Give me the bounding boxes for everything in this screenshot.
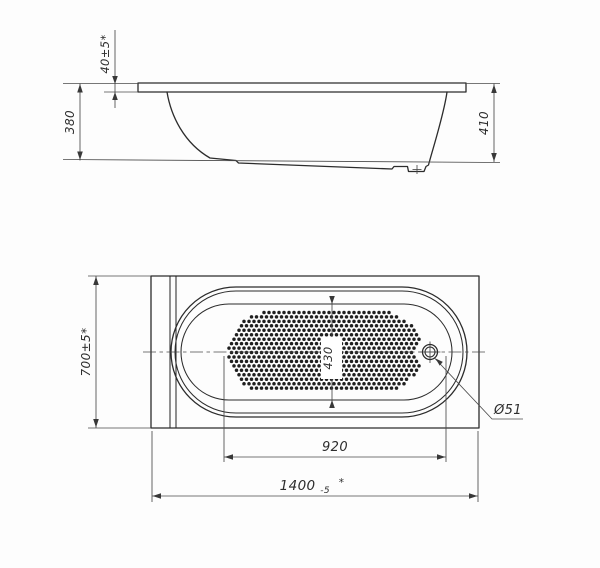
anti-slip-dot [297,364,301,368]
anti-slip-dot [362,346,366,350]
anti-slip-dot [300,360,304,364]
anti-slip-dot [355,315,359,319]
anti-slip-dot [307,337,311,341]
anti-slip-dot [250,342,254,346]
anti-slip-dot [382,373,386,377]
anti-slip-dot [295,315,299,319]
anti-slip-dot [252,320,256,324]
anti-slip-dot [372,337,376,341]
anti-slip-dot [320,333,324,337]
anti-slip-dot [287,320,291,324]
anti-slip-dot [265,315,269,319]
anti-slip-dot [412,346,416,350]
anti-slip-dot [252,382,256,386]
anti-slip-dot [352,329,356,333]
anti-slip-dot [340,333,344,337]
anti-slip-dot [317,373,321,377]
anti-slip-dot [407,373,411,377]
anti-slip-dot [342,320,346,324]
anti-slip-dot [290,324,294,328]
anti-slip-dot [370,342,374,346]
anti-slip-dot [270,377,274,381]
anti-slip-dot [270,333,274,337]
anti-slip-dot [237,337,241,341]
anti-slip-dot [255,369,259,373]
anti-slip-dot [312,337,316,341]
anti-slip-dot [385,333,389,337]
anti-slip-dot [380,324,384,328]
anti-slip-dot [390,351,394,355]
anti-slip-dot [265,342,269,346]
anti-slip-dot [237,329,241,333]
anti-slip-dot [292,382,296,386]
anti-slip-dot [280,386,284,390]
anti-slip-dot [297,337,301,341]
anti-slip-dot [255,315,259,319]
anti-slip-dot [400,324,404,328]
anti-slip-dot [305,360,309,364]
anti-slip-dot [350,386,354,390]
anti-slip-dot [350,342,354,346]
anti-slip-dot [380,386,384,390]
anti-slip-dot [375,333,379,337]
anti-slip-dot [345,351,349,355]
anti-slip-dot [345,360,349,364]
anti-slip-dot [380,360,384,364]
side-view: 40±5* 380 410 [63,30,500,174]
anti-slip-dot [252,329,256,333]
anti-slip-dot [347,355,351,359]
anti-slip-dot [372,364,376,368]
anti-slip-dot [382,337,386,341]
anti-slip-dot [307,311,311,315]
anti-slip-dot [355,369,359,373]
anti-slip-dot [355,360,359,364]
anti-slip-dot [302,329,306,333]
anti-slip-dot [352,311,356,315]
anti-slip-dot [362,364,366,368]
anti-slip-dot [357,355,361,359]
anti-slip-dot [260,360,264,364]
anti-slip-dot [385,360,389,364]
anti-slip-dot [340,386,344,390]
anti-slip-dot [405,324,409,328]
anti-slip-dot [282,320,286,324]
anti-slip-dot [305,324,309,328]
anti-slip-dot [310,386,314,390]
anti-slip-dot [257,382,261,386]
anti-slip-dot [282,355,286,359]
anti-slip-dot [412,355,416,359]
anti-slip-dot [307,320,311,324]
anti-slip-dot [325,324,329,328]
top-view: 430 Ø51 700±5* [79,276,523,502]
anti-slip-dot [337,382,341,386]
anti-slip-dot [382,311,386,315]
anti-slip-dot [320,315,324,319]
anti-slip-dot [362,311,366,315]
anti-slip-dot [370,386,374,390]
anti-slip-dot [375,315,379,319]
anti-slip-dot [282,337,286,341]
anti-slip-dot [360,324,364,328]
anti-slip-dot [377,311,381,315]
anti-slip-dot [397,337,401,341]
anti-slip-dot [362,382,366,386]
anti-slip-dot [402,337,406,341]
anti-slip-dot [245,324,249,328]
anti-slip-dot [245,342,249,346]
anti-slip-dot [397,364,401,368]
anti-slip-dot [407,346,411,350]
anti-slip-dot [347,320,351,324]
anti-slip-dot [405,377,409,381]
anti-slip-dot [265,360,269,364]
anti-slip-dot [302,311,306,315]
anti-slip-dot [290,342,294,346]
anti-slip-dot [267,346,271,350]
anti-slip-dot [397,382,401,386]
anti-slip-dot [230,342,234,346]
anti-slip-dot [365,333,369,337]
anti-slip-dot [405,351,409,355]
anti-slip-dot [277,346,281,350]
anti-slip-dot [372,346,376,350]
anti-slip-dot [255,386,259,390]
anti-slip-dot [295,377,299,381]
anti-slip-dot [312,382,316,386]
anti-slip-dot [270,360,274,364]
anti-slip-dot [237,364,241,368]
anti-slip-dot [235,342,239,346]
anti-slip-dot [247,364,251,368]
anti-slip-dot [267,355,271,359]
anti-slip-dot [257,329,261,333]
anti-slip-dot [272,355,276,359]
anti-slip-dot [342,382,346,386]
anti-slip-dot [357,337,361,341]
anti-slip-dot [330,333,334,337]
anti-slip-dot [252,373,256,377]
anti-slip-dot [355,386,359,390]
anti-slip-dot [370,377,374,381]
anti-slip-dot [412,337,416,341]
anti-slip-dot [350,369,354,373]
anti-slip-dot [237,355,241,359]
anti-slip-dot [412,364,416,368]
anti-slip-dot [312,364,316,368]
anti-slip-dot [232,346,236,350]
anti-slip-dot [272,382,276,386]
anti-slip-dot [392,355,396,359]
anti-slip-dot [302,346,306,350]
anti-slip-dot [290,360,294,364]
anti-slip-dot [395,315,399,319]
anti-slip-dot [357,311,361,315]
anti-slip-dot [285,386,289,390]
anti-slip-dot [280,324,284,328]
anti-slip-dot [365,324,369,328]
anti-slip-dot [267,364,271,368]
anti-slip-dot [277,382,281,386]
anti-slip-dot [267,373,271,377]
anti-slip-dot [305,333,309,337]
anti-slip-dot [395,369,399,373]
anti-slip-dot [287,382,291,386]
anti-slip-dot [255,377,259,381]
anti-slip-dot [257,355,261,359]
anti-slip-dot [322,382,326,386]
anti-slip-dot [355,333,359,337]
anti-slip-dot [335,333,339,337]
anti-slip-dot [300,369,304,373]
anti-slip-dot [332,320,336,324]
anti-slip-dot [370,324,374,328]
anti-slip-dot [265,369,269,373]
anti-slip-dot [385,315,389,319]
side-drain-cross-icon [413,165,422,174]
anti-slip-dot [295,351,299,355]
anti-slip-dot [255,333,259,337]
anti-slip-dot [367,355,371,359]
anti-slip-dot [375,351,379,355]
anti-slip-dot [392,337,396,341]
anti-slip-dot [325,386,329,390]
anti-slip-dot [277,364,281,368]
anti-slip-dot [390,315,394,319]
anti-slip-dot [280,333,284,337]
anti-slip-dot [272,311,276,315]
anti-slip-dot [242,382,246,386]
anti-slip-dot [340,324,344,328]
anti-slip-dot [402,329,406,333]
anti-slip-dot [317,311,321,315]
anti-slip-dot [275,351,279,355]
anti-slip-dot [410,360,414,364]
anti-slip-dot [387,329,391,333]
anti-slip-dot [367,346,371,350]
anti-slip-dot [275,315,279,319]
anti-slip-dot [250,315,254,319]
anti-slip-dot [402,355,406,359]
anti-slip-dot [242,346,246,350]
anti-slip-dot [350,360,354,364]
anti-slip-dot [290,351,294,355]
anti-slip-dot [310,342,314,346]
anti-slip-dot [242,329,246,333]
anti-slip-dot [382,329,386,333]
anti-slip-dot [365,351,369,355]
anti-slip-dot [235,369,239,373]
anti-slip-dot [247,373,251,377]
anti-slip-dot [280,369,284,373]
anti-slip-dot [292,355,296,359]
anti-slip-dot [300,333,304,337]
anti-slip-dot [252,355,256,359]
anti-slip-dot [380,369,384,373]
anti-slip-dot [387,373,391,377]
anti-slip-dot [257,373,261,377]
side-view-rim [138,83,466,92]
anti-slip-dot [392,329,396,333]
anti-slip-dot [240,333,244,337]
anti-slip-dot [277,320,281,324]
bathtub-drawing: 40±5* 380 410 [0,0,600,568]
anti-slip-dot [265,377,269,381]
anti-slip-dot [402,320,406,324]
anti-slip-dot [395,342,399,346]
anti-slip-dot [255,351,259,355]
anti-slip-dot [330,324,334,328]
anti-slip-dot [242,364,246,368]
anti-slip-dot [290,369,294,373]
anti-slip-dot [237,346,241,350]
anti-slip-dot [322,320,326,324]
overall-width-label: 700±5* [79,328,93,377]
anti-slip-dot [347,364,351,368]
anti-slip-dot [277,355,281,359]
anti-slip-dot [285,333,289,337]
anti-slip-dot [380,315,384,319]
anti-slip-dot [392,364,396,368]
anti-slip-dot [302,355,306,359]
anti-slip-dot [342,346,346,350]
anti-slip-dot [285,342,289,346]
anti-slip-dot [282,311,286,315]
anti-slip-dot [242,320,246,324]
height-left-label: 380 [63,110,77,134]
anti-slip-dot [385,351,389,355]
anti-slip-dot [285,351,289,355]
anti-slip-dot [345,324,349,328]
anti-slip-dot [415,369,419,373]
anti-slip-dot [250,386,254,390]
anti-slip-dot [382,382,386,386]
anti-slip-dot [247,346,251,350]
anti-slip-dot [322,329,326,333]
anti-slip-dot [415,342,419,346]
anti-slip-dot [275,386,279,390]
anti-slip-dot [385,324,389,328]
anti-slip-dot [307,346,311,350]
anti-slip-dot [270,386,274,390]
anti-slip-dot [300,351,304,355]
anti-slip-dot [380,377,384,381]
anti-slip-dot [342,337,346,341]
anti-slip-dot [390,360,394,364]
dimension-overall-length: 1400 -5 * [152,431,478,502]
anti-slip-dot [370,351,374,355]
anti-slip-dot [260,333,264,337]
anti-slip-dot [315,342,319,346]
anti-slip-dot [272,337,276,341]
anti-slip-dot [277,373,281,377]
anti-slip-dot [385,342,389,346]
anti-slip-dot [287,355,291,359]
anti-slip-dot [250,324,254,328]
anti-slip-dot [282,373,286,377]
anti-slip-dot [387,320,391,324]
anti-slip-dot [297,311,301,315]
anti-slip-dot [270,351,274,355]
anti-slip-dot [245,351,249,355]
anti-slip-dot [272,364,276,368]
anti-slip-dot [252,337,256,341]
anti-slip-dot [300,324,304,328]
anti-slip-dot [312,373,316,377]
anti-slip-dot [350,333,354,337]
anti-slip-dot [405,342,409,346]
anti-slip-dot [345,342,349,346]
anti-slip-dot [287,337,291,341]
anti-slip-dot [230,360,234,364]
anti-slip-dot [317,320,321,324]
anti-slip-dot [385,386,389,390]
anti-slip-dot [252,364,256,368]
anti-slip-dot [247,337,251,341]
anti-slip-dot [355,377,359,381]
anti-slip-dot [392,382,396,386]
anti-slip-dot [362,329,366,333]
anti-slip-dot [347,382,351,386]
anti-slip-dot [382,355,386,359]
anti-slip-dot [337,329,341,333]
anti-slip-dot [340,315,344,319]
anti-slip-dot [250,360,254,364]
anti-slip-dot [300,342,304,346]
anti-slip-dot [285,324,289,328]
anti-slip-dot [305,342,309,346]
anti-slip-dot [295,369,299,373]
anti-slip-dot [392,346,396,350]
anti-slip-dot [342,373,346,377]
anti-slip-dot [305,369,309,373]
anti-slip-dot [362,320,366,324]
anti-slip-dot [352,346,356,350]
anti-slip-dot [370,360,374,364]
overall-length-note: * [339,477,345,489]
anti-slip-dot [417,364,421,368]
rim-height-label: 40±5* [98,34,112,73]
anti-slip-dot [382,320,386,324]
anti-slip-dot [265,351,269,355]
anti-slip-dot [245,377,249,381]
anti-slip-dot [305,351,309,355]
overall-length-label: 1400 -5 * [280,477,345,497]
anti-slip-dot [350,315,354,319]
anti-slip-dot [295,333,299,337]
anti-slip-dot [292,337,296,341]
anti-slip-dot [372,373,376,377]
anti-slip-dot [305,386,309,390]
anti-slip-dot [312,355,316,359]
anti-slip-dot [240,342,244,346]
anti-slip-dot [307,355,311,359]
anti-slip-dot [360,315,364,319]
anti-slip-dot [260,315,264,319]
anti-slip-dot [325,315,329,319]
anti-slip-dot [377,364,381,368]
anti-slip-dot [385,377,389,381]
dimension-height-left: 380 [63,84,83,161]
anti-slip-dot [315,360,319,364]
anti-slip-dot [405,369,409,373]
anti-slip-dot [360,386,364,390]
anti-slip-dot [272,320,276,324]
anti-slip-dot [332,382,336,386]
anti-slip-dot [410,324,414,328]
anti-slip-dot [335,386,339,390]
